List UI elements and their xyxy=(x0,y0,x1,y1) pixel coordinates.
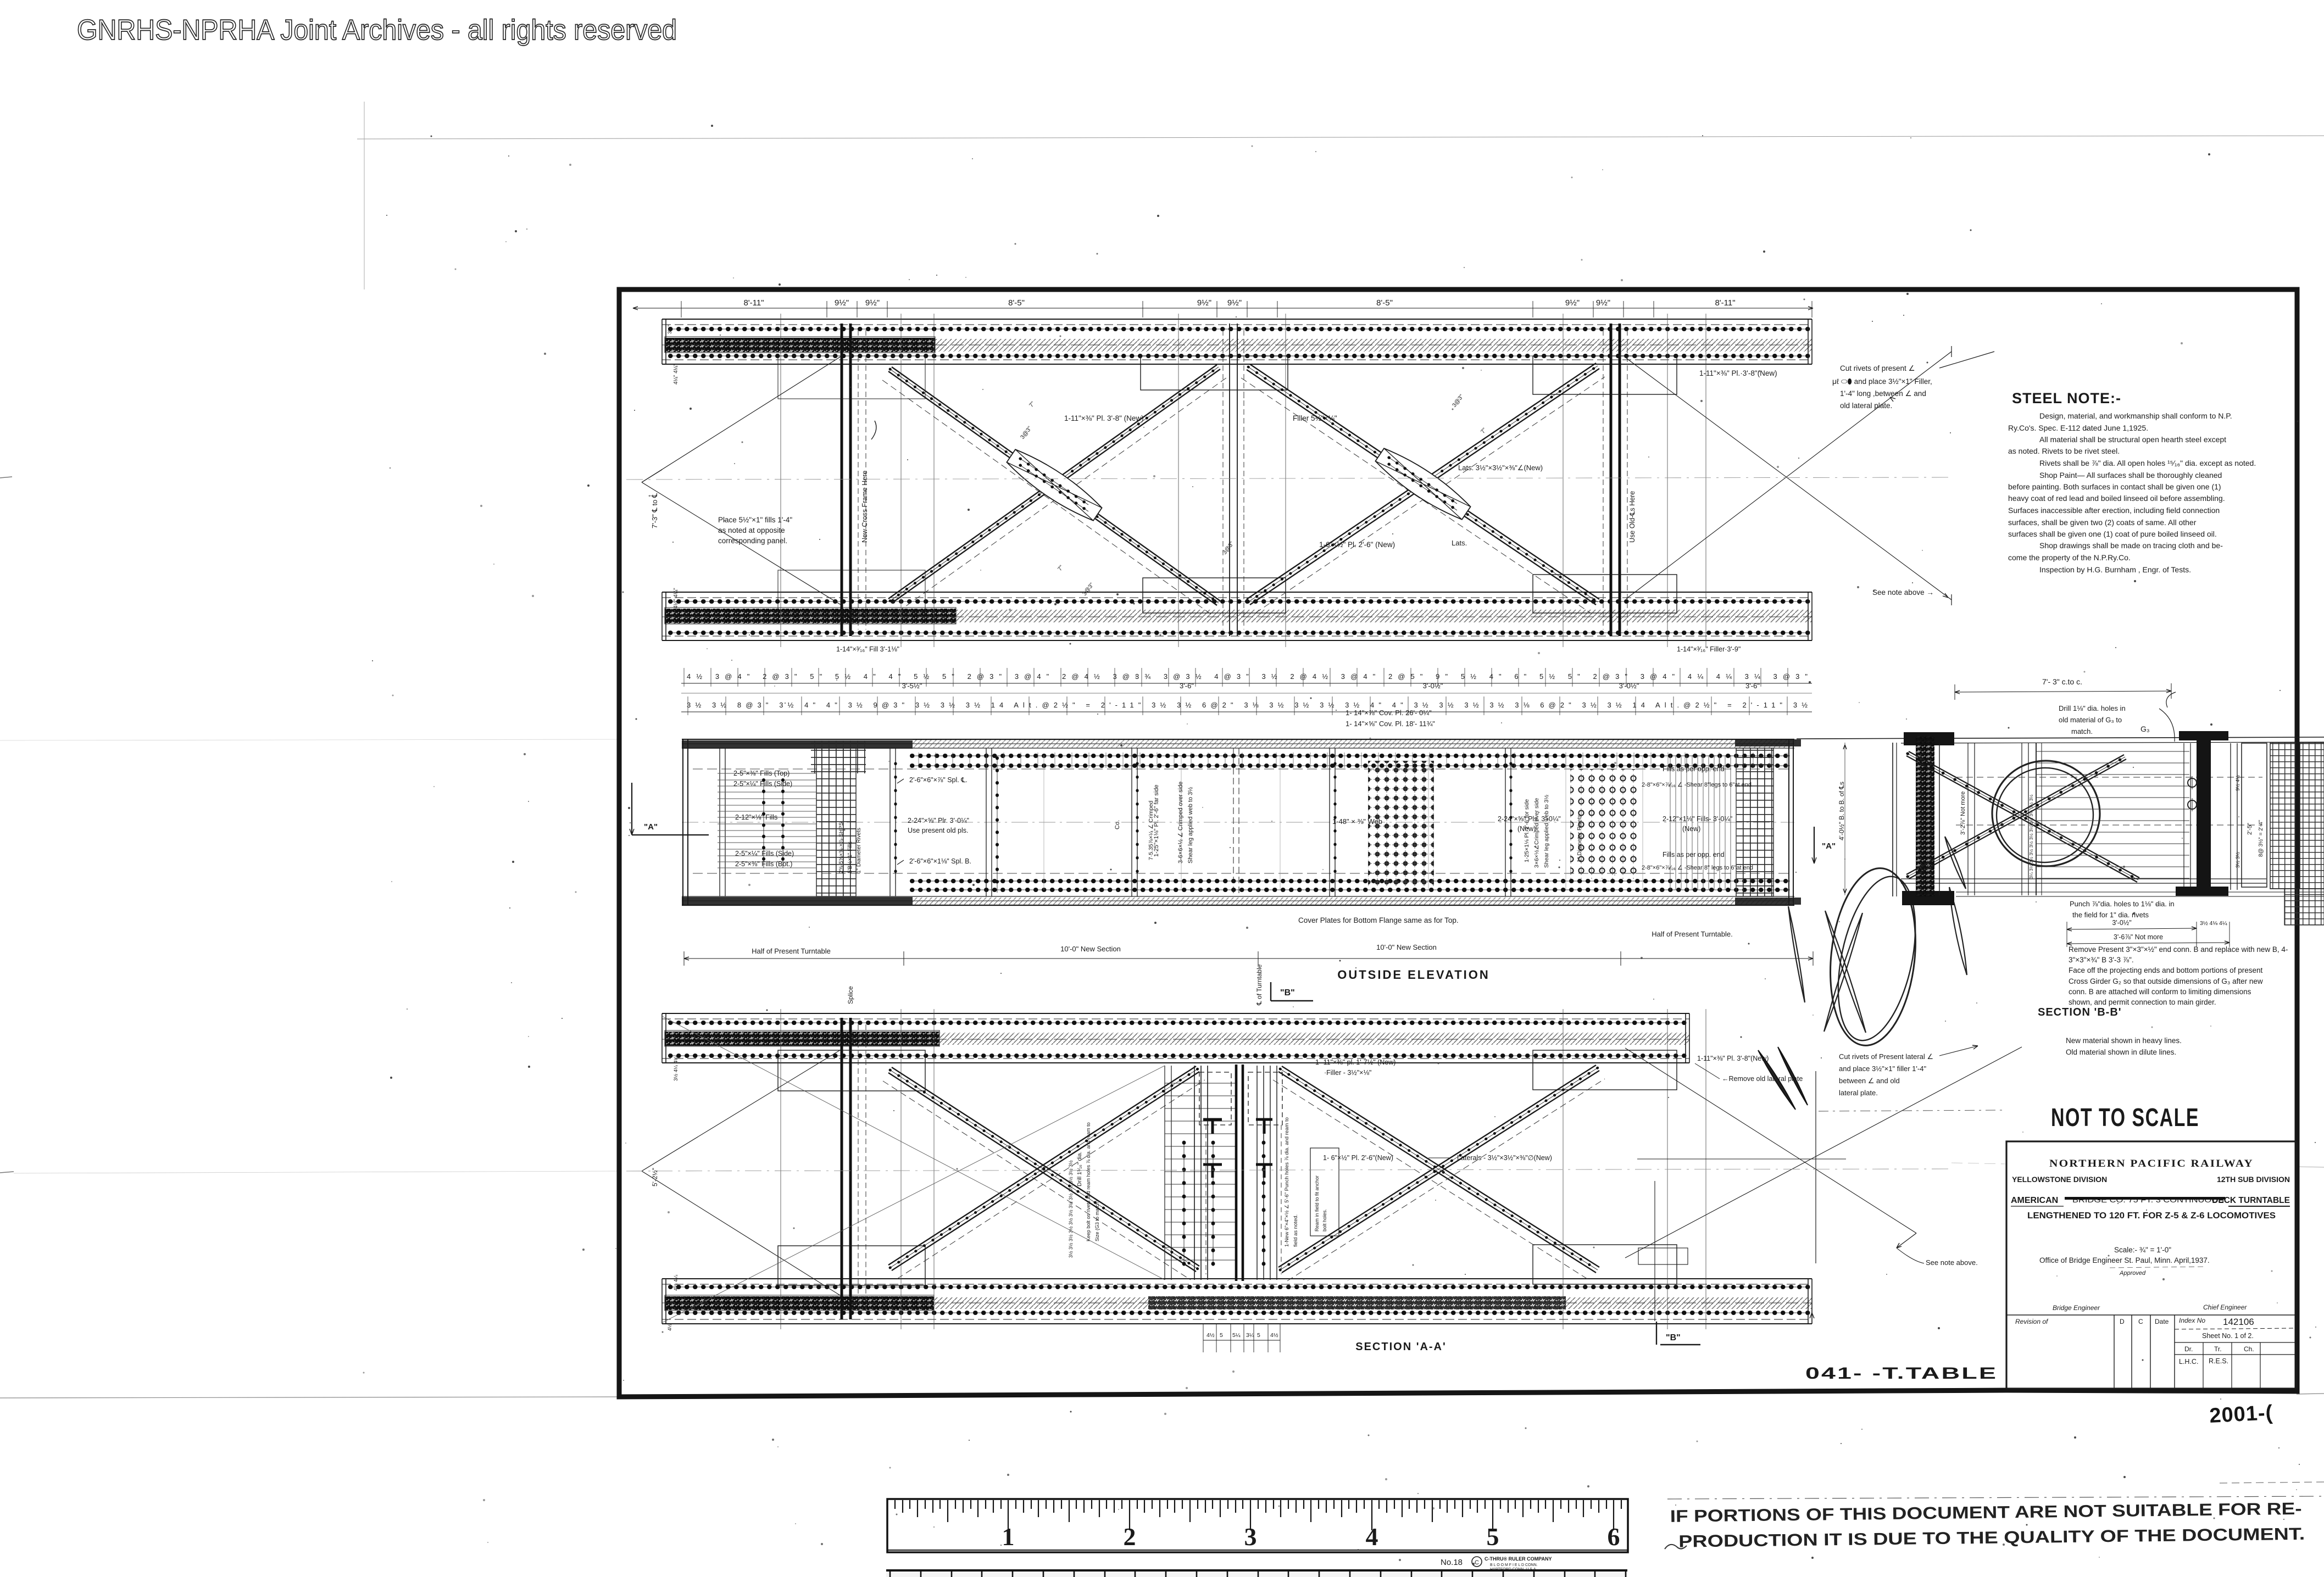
svg-text:NOT TO SCALE: NOT TO SCALE xyxy=(2051,1103,2199,1132)
svg-text:"A": "A" xyxy=(1822,842,1836,851)
svg-text:GNRHS-NPRHA Joint Archives - a: GNRHS-NPRHA Joint Archives - all rights … xyxy=(77,14,677,46)
svg-text:9½": 9½" xyxy=(1565,298,1580,308)
svg-text:4¼ 4¼: 4¼ 4¼ xyxy=(673,1274,679,1291)
svg-text:9½": 9½" xyxy=(1596,298,1610,308)
svg-text:surfaces, shall be given two (: surfaces, shall be given two (2) coats o… xyxy=(2008,518,2197,527)
svg-text:Half of Present Turntable.: Half of Present Turntable. xyxy=(1652,930,1732,938)
svg-text:2⅝·5⅝×⅜·×⅞·SHPS: 2⅝·5⅝×⅜·×⅞·SHPS xyxy=(838,822,844,873)
svg-text:Place 5½"×1" fills 1'-4": Place 5½"×1" fills 1'-4" xyxy=(718,516,792,524)
svg-text:lateral plate.: lateral plate. xyxy=(1839,1089,1878,1097)
svg-text:Design, material, and workmans: Design, material, and workmanship shall … xyxy=(2039,411,2232,420)
svg-text:match.: match. xyxy=(2071,727,2093,735)
svg-text:5'B½×1" Fills: 5'B½×1" Fills xyxy=(847,842,853,873)
svg-text:μℓ ⬭⬮ and place 3½"×1" Filler,: μℓ ⬭⬮ and place 3½"×1" Filler, xyxy=(1832,377,1932,386)
svg-text:1-14"×³⁄₁₆" Filler·3'-9": 1-14"×³⁄₁₆" Filler·3'-9" xyxy=(1677,645,1741,653)
svg-text:9½": 9½" xyxy=(1197,298,1211,308)
svg-text:1" Diameter Rivets: 1" Diameter Rivets xyxy=(1576,815,1583,862)
svg-text:Drill 1¹⁄₁₆" dia.: Drill 1¹⁄₁₆" dia. xyxy=(1076,1152,1083,1186)
svg-text:Use Old-℄s Here: Use Old-℄s Here xyxy=(1628,491,1636,543)
svg-text:Revision of: Revision of xyxy=(2015,1318,2049,1325)
svg-text:3½ 3½: 3½ 3½ xyxy=(2235,852,2241,868)
svg-text:4: 4 xyxy=(1366,1523,1378,1551)
svg-text:5: 5 xyxy=(1257,1332,1260,1339)
svg-text:5: 5 xyxy=(1220,1332,1223,1339)
svg-text:Filler 5½"×⅛": Filler 5½"×⅛" xyxy=(1293,414,1337,422)
svg-text:3¼: 3¼ xyxy=(1246,1332,1254,1339)
svg-text:2-8"×6"×⅞⁄₁₆ ∠ -Shear 8" legs: 2-8"×6"×⅞⁄₁₆ ∠ -Shear 8" legs to 6"at en… xyxy=(1642,865,1753,871)
svg-text:3½ 4¼ 4¼: 3½ 4¼ 4¼ xyxy=(673,1056,679,1081)
svg-text:4¼" 4¼": 4¼" 4¼" xyxy=(672,364,679,385)
svg-text:Chief Engineer: Chief Engineer xyxy=(2203,1303,2247,1311)
svg-text:Cross Girder G₂ so that outsid: Cross Girder G₂ so that outside dimensio… xyxy=(2069,977,2263,985)
svg-text:Approved: Approved xyxy=(2119,1270,2146,1277)
svg-text:See note above →: See note above → xyxy=(1872,588,1934,597)
svg-text:3½ 3½ 3½ 3½ 3½ 3½ 3½ 3½ 3½ 3½: 3½ 3½ 3½ 3½ 3½ 3½ 3½ 3½ 3½ 3½ 3½ 3½ xyxy=(1068,1160,1074,1258)
svg-text:between ∠ and old: between ∠ and old xyxy=(1839,1077,1900,1085)
svg-text:(New): (New) xyxy=(1682,825,1700,833)
svg-text:L.H.C.: L.H.C. xyxy=(2179,1358,2198,1366)
svg-text:C: C xyxy=(1475,1559,1479,1566)
svg-text:C: C xyxy=(2138,1318,2143,1325)
svg-text:2001-(: 2001-( xyxy=(2209,1401,2273,1428)
svg-text:field as noted.: field as noted. xyxy=(1293,1214,1299,1247)
svg-text:12TH SUB DIVISION: 12TH SUB DIVISION xyxy=(2217,1175,2290,1184)
svg-text:SECTION 'B-B': SECTION 'B-B' xyxy=(2038,1006,2122,1018)
svg-text:3'-6": 3'-6" xyxy=(1745,682,1760,690)
svg-text:YELLOWSTONE DIVISION: YELLOWSTONE DIVISION xyxy=(2012,1175,2107,1184)
svg-text:2-24"×⅝" Plr. 3'-0¼": 2-24"×⅝" Plr. 3'-0¼" xyxy=(908,817,969,824)
svg-text:the field for 1" dia. rivets: the field for 1" dia. rivets xyxy=(2072,911,2149,919)
svg-text:3½ 4⅛ 4¼: 3½ 4⅛ 4¼ xyxy=(2200,920,2227,927)
svg-text:4½: 4½ xyxy=(667,1324,673,1331)
svg-text:D: D xyxy=(2120,1318,2125,1325)
svg-text:3'-6": 3'-6" xyxy=(1180,682,1194,690)
svg-text:3-6×6×½ ∠ Crimped over side: 3-6×6×½ ∠ Crimped over side xyxy=(1177,782,1184,863)
svg-text:1'-4" long ,between ∠ and: 1'-4" long ,between ∠ and xyxy=(1840,389,1926,398)
svg-text:surfaces shall be given one (1: surfaces shall be given one (1) coat of … xyxy=(2008,530,2217,538)
svg-text:LENGTHENED TO 120 FT. FOR Z: LENGTHENED TO 120 FT. FOR Z-5 & Z-6 LOCO… xyxy=(2027,1211,2276,1221)
svg-text:3'-0½": 3'-0½" xyxy=(1423,682,1443,690)
svg-text:NORTHERN PACIFIC RAILWAY: NORTHERN PACIFIC RAILWAY xyxy=(2049,1158,2254,1169)
svg-text:Surfaces inaccessible after e: Surfaces inaccessible after erection, in… xyxy=(2008,506,2220,515)
svg-text:Size (G3 to match): Size (G3 to match) xyxy=(1094,1200,1100,1241)
svg-text:corresponding panel.: corresponding panel. xyxy=(718,537,787,545)
svg-text:1-New 6"×4"×½ ∠ 5'-6" Punch h: 1-New 6"×4"×½ ∠ 5'-6" Punch holes ⅞ dia.… xyxy=(1284,1117,1290,1247)
svg-text:and place 3½"×1" filler 1'-4: and place 3½"×1" filler 1'-4" xyxy=(1839,1065,1926,1073)
svg-text:Punch ⅞"dia. holes to 1⅛" dia.: Punch ⅞"dia. holes to 1⅛" dia. in xyxy=(2070,900,2175,908)
svg-text:"B": "B" xyxy=(1666,1333,1681,1342)
svg-text:3'-6⅞" Not more: 3'-6⅞" Not more xyxy=(2114,933,2163,941)
svg-text:old material of G₃ to: old material of G₃ to xyxy=(2059,716,2122,724)
svg-text:Index No: Index No xyxy=(2179,1317,2205,1324)
svg-text:Fills as per opp. end: Fills as per opp. end xyxy=(1663,765,1725,773)
svg-text:9½": 9½" xyxy=(1227,298,1242,308)
svg-text:3'-2⅞" Not more: 3'-2⅞" Not more xyxy=(1960,792,1966,835)
svg-text:1-6"×½" Pl. 2'-6" (New): 1-6"×½" Pl. 2'-6" (New) xyxy=(1319,540,1395,549)
svg-text:G₃: G₃ xyxy=(2140,725,2150,733)
svg-text:9½ 4½: 9½ 4½ xyxy=(2235,775,2241,791)
svg-text:1-11"×⅜" Pl.·3'-8"(New): 1-11"×⅜" Pl.·3'-8"(New) xyxy=(1699,369,1777,377)
svg-text:1-11"×⅜" Pl. 3'-8"(New): 1-11"×⅜" Pl. 3'-8"(New) xyxy=(1697,1055,1769,1062)
svg-text:SECTION 'A-A': SECTION 'A-A' xyxy=(1355,1341,1447,1353)
svg-text:℄ of Turntable: ℄ of Turntable xyxy=(1255,964,1263,1006)
svg-text:Shear leg applied web to 3½: Shear leg applied web to 3½ xyxy=(1543,795,1550,868)
svg-text:5¼: 5¼ xyxy=(1232,1332,1241,1339)
svg-text:7'- 3" c.to c.: 7'- 3" c.to c. xyxy=(2042,677,2082,686)
svg-text:old lateral plate.: old lateral plate. xyxy=(1840,402,1892,410)
svg-text:shown, and permit connection t: shown, and permit connection to main gir… xyxy=(2069,998,2216,1006)
svg-text:Ream in field to fit anchor: Ream in field to fit anchor xyxy=(1314,1175,1320,1231)
svg-text:All material shall be structur: All material shall be structural open he… xyxy=(2039,435,2226,444)
svg-text:5: 5 xyxy=(1487,1523,1499,1551)
svg-text:4¼" 4¼": 4¼" 4¼" xyxy=(672,588,679,609)
svg-text:8'-5": 8'-5" xyxy=(1376,298,1393,308)
svg-text:4½: 4½ xyxy=(1270,1332,1278,1339)
svg-text:Fills as per opp. end: Fills as per opp. end xyxy=(1663,851,1725,859)
svg-text:Remove Present 3"×3"×½" end co: Remove Present 3"×3"×½" end conn. B and … xyxy=(2069,945,2288,954)
svg-text:"B": "B" xyxy=(1280,988,1295,998)
svg-text:3'-0½": 3'-0½" xyxy=(2112,919,2131,927)
svg-text:8'-11": 8'-11" xyxy=(1715,298,1735,308)
svg-text:10'-0" New Section: 10'-0" New Section xyxy=(1376,943,1437,951)
svg-text:041- -T.TABLE: 041- -T.TABLE xyxy=(1805,1364,1998,1383)
svg-text:Bridge Engineer: Bridge Engineer xyxy=(2053,1304,2100,1312)
svg-text:Use present old pls.: Use present old pls. xyxy=(908,827,968,834)
svg-text:←Remove old lateral plate: ←Remove old lateral plate xyxy=(1722,1075,1803,1083)
svg-text:Drill 1⅛" dia. holes in: Drill 1⅛" dia. holes in xyxy=(2059,704,2126,712)
svg-text:1- 14"×⅝" Cov. Pl. 18'- 11¾": 1- 14"×⅝" Cov. Pl. 18'- 11¾" xyxy=(1346,720,1435,728)
svg-text:·Filler - 3½"×⅛": ·Filler - 3½"×⅛" xyxy=(1324,1069,1371,1077)
svg-text:Co.: Co. xyxy=(1114,820,1121,829)
svg-text:1- 14"×⅞" Cov. Pl. 26'- 0¼": 1- 14"×⅞" Cov. Pl. 26'- 0¼" xyxy=(1346,709,1432,717)
svg-text:2'-6"×6"×1⅛" Spl. B.: 2'-6"×6"×1⅛" Spl. B. xyxy=(909,857,971,865)
svg-text:3'-0½": 3'-0½" xyxy=(1619,682,1639,690)
svg-text:Old material shown in dilute l: Old material shown in dilute lines. xyxy=(2066,1048,2176,1056)
svg-text:Ch.: Ch. xyxy=(2244,1345,2254,1353)
svg-text:8'-11": 8'-11" xyxy=(743,298,764,308)
svg-text:heavy coat of red lead and boi: heavy coat of red lead and boiled linsee… xyxy=(2008,494,2225,503)
svg-text:142106: 142106 xyxy=(2223,1317,2254,1327)
svg-text:Office of Bridge Engineer: Office of Bridge Engineer St. Paul, Minn… xyxy=(2039,1256,2210,1264)
svg-text:Splice: Splice xyxy=(847,986,854,1004)
svg-text:Half of Present Turntable: Half of Present Turntable xyxy=(752,947,831,955)
svg-text:10'-0" New Section: 10'-0" New Section xyxy=(1060,945,1121,953)
svg-text:2-5"×¼" Fills (Side): 2-5"×¼" Fills (Side) xyxy=(733,780,792,788)
svg-text:New Cross Frame Here: New Cross Frame Here xyxy=(861,471,869,543)
svg-text:as noted at opposite: as noted at opposite xyxy=(718,526,785,534)
svg-text:2-8"×6"×⅞⁄₁₆ ∠ -Shear 8"legs t: 2-8"×6"×⅞⁄₁₆ ∠ -Shear 8"legs to 6"at end xyxy=(1642,782,1752,788)
svg-text:"A": "A" xyxy=(644,822,658,832)
svg-text:No.18: No.18 xyxy=(1441,1558,1463,1567)
svg-text:5'-2½": 5'-2½" xyxy=(651,1168,659,1186)
svg-text:before painting. Both surf: before painting. Both surfaces in contac… xyxy=(2008,482,2221,491)
svg-text:Cut rivets of Present lateral: Cut rivets of Present lateral ∠ xyxy=(1839,1052,1933,1061)
svg-text:1: 1 xyxy=(1002,1523,1015,1551)
svg-text:Shear leg applied web to 3½: Shear leg applied web to 3½ xyxy=(1187,787,1194,863)
svg-text:See note above.: See note above. xyxy=(1926,1258,1978,1267)
svg-text:7·5.35⅞×¼ ∠ Crimped: 7·5.35⅞×¼ ∠ Crimped xyxy=(1148,800,1154,860)
svg-text:New material shown in heavy li: New material shown in heavy lines. xyxy=(2066,1037,2182,1045)
svg-text:2-12"×⅛" Fills: 2-12"×⅛" Fills xyxy=(735,813,777,821)
svg-text:3×6×½∠Crimped over side: 3×6×½∠Crimped over side xyxy=(1533,798,1540,868)
svg-text:come the property of the N.P.R: come the property of the N.P.Ry.Co. xyxy=(2008,553,2131,562)
svg-text:8'-5": 8'-5" xyxy=(1008,298,1025,308)
svg-text:2: 2 xyxy=(1124,1523,1136,1551)
svg-text:4½: 4½ xyxy=(1207,1332,1215,1339)
svg-text:1- 6"×½" Pl. 2'-6"(New): 1- 6"×½" Pl. 2'-6"(New) xyxy=(1323,1154,1393,1162)
svg-text:Lats.: Lats. xyxy=(1452,539,1467,547)
svg-text:Rivets shall be ⅞" dia. All: Rivets shall be ⅞" dia. All open holes ¹… xyxy=(2039,459,2256,467)
svg-text:3"×3"×¾" B 3'-3 ⅞".: 3"×3"×¾" B 3'-3 ⅞". xyxy=(2069,956,2134,964)
svg-text:2-5"×⅜" Fills (Bot.): 2-5"×⅜" Fills (Bot.) xyxy=(735,860,792,868)
svg-text:conn. B are attached will conf: conn. B are attached will conform to lim… xyxy=(2069,988,2251,996)
svg-text:Cut rivets of present ∠: Cut rivets of present ∠ xyxy=(1840,364,1915,372)
svg-text:←: ← xyxy=(647,491,654,499)
svg-text:Inspection by H.G. Burnham , E: Inspection by H.G. Burnham , Engr. of Te… xyxy=(2039,565,2191,574)
svg-text:1-25×1⅛ Pl. 2'-6"for side: 1-25×1⅛ Pl. 2'-6"for side xyxy=(1524,799,1530,862)
svg-text:3½": 3½" xyxy=(667,325,673,334)
svg-text:Lats. 3½"×3½"×⅜"∠(New): Lats. 3½"×3½"×⅜"∠(New) xyxy=(1458,464,1543,472)
svg-text:3¼ 3½ 3½ 3½ 3½ 3½ 3½ 3¼ 3½ 3½: 3¼ 3½ 3½ 3½ 3½ 3½ 3½ 3¼ 3½ 3½ 3½ xyxy=(2028,794,2034,879)
svg-text:as noted. Rivets to be riv: as noted. Rivets to be rivet steel. xyxy=(2008,447,2120,455)
svg-text:Laterals - 3½"×3½"×⅜"∅(New): Laterals - 3½"×3½"×⅜"∅(New) xyxy=(1457,1154,1552,1162)
svg-text:1-11"×⅜" Pl. 3'-8" (New): 1-11"×⅜" Pl. 3'-8" (New) xyxy=(1064,414,1144,422)
svg-text:8@ 3½" = 2'-4": 8@ 3½" = 2'-4" xyxy=(2258,820,2264,857)
svg-text:1- 11"×⅜" pl. 1'-7½" (New): 1- 11"×⅜" pl. 1'-7½" (New) xyxy=(1315,1058,1395,1066)
svg-text:4'-0½" B. to B. of ℄s: 4'-0½" B. to B. of ℄s xyxy=(1838,782,1845,840)
svg-text:9½": 9½" xyxy=(865,298,880,308)
svg-text:AMERICAN: AMERICAN xyxy=(2011,1196,2058,1205)
svg-text:Face off the projecting ends a: Face off the projecting ends and bottom … xyxy=(2069,966,2262,974)
svg-text:1" Diameter Rivets: 1" Diameter Rivets xyxy=(856,828,862,873)
svg-text:2'-6"×6"×⅞" Spl. ℄.: 2'-6"×6"×⅞" Spl. ℄. xyxy=(909,776,968,784)
svg-text:6: 6 xyxy=(1608,1523,1620,1551)
svg-text:Cover Plates for Bottom Flange: Cover Plates for Bottom Flange same as f… xyxy=(1298,916,1459,924)
svg-text:2-5"×⅜" Fills (Top): 2-5"×⅜" Fills (Top) xyxy=(733,770,790,777)
svg-text:OUTSIDE ELEVATION: OUTSIDE ELEVATION xyxy=(1337,968,1490,982)
svg-text:B L O O M F I E L D CONN.: B L O O M F I E L D CONN. xyxy=(1490,1563,1538,1567)
svg-text:Ry.Co's. Spec. E-112 dated Jun: Ry.Co's. Spec. E-112 dated June 1,1925. xyxy=(2008,423,2148,432)
svg-text:STEEL NOTE:-: STEEL NOTE:- xyxy=(2012,390,2121,406)
svg-text:bolt holes.: bolt holes. xyxy=(1322,1209,1327,1231)
svg-text:3'-5½": 3'-5½" xyxy=(902,682,922,690)
svg-text:9½": 9½" xyxy=(835,298,849,308)
svg-text:2'-5": 2'-5" xyxy=(2247,823,2253,835)
svg-text:2-5"×¼" Fills (Side): 2-5"×¼" Fills (Side) xyxy=(735,850,794,857)
svg-text:1-48" × ⅜" Web: 1-48" × ⅜" Web xyxy=(1332,817,1382,826)
svg-text:Shop drawings shall be made on: Shop drawings shall be made on tracing c… xyxy=(2039,541,2223,550)
svg-text:3: 3 xyxy=(1244,1523,1257,1551)
svg-text:2-12"×1⅛" Fills- 3'-0¼": 2-12"×1⅛" Fills- 3'-0¼" xyxy=(1663,815,1732,823)
svg-text:R.E.S.: R.E.S. xyxy=(2209,1357,2228,1365)
svg-text:1-14"×³⁄₁₆" Fill 3'-1⅛": 1-14"×³⁄₁₆" Fill 3'-1⅛" xyxy=(836,645,899,653)
svg-text:Keep bolt on rivets and ream h: Keep bolt on rivets and ream holes ⅞ dia… xyxy=(1086,1122,1091,1241)
svg-text:Scale:- ¾" = 1'-0": Scale:- ¾" = 1'-0" xyxy=(2114,1246,2171,1254)
svg-text:Dr.: Dr. xyxy=(2184,1345,2193,1353)
svg-text:Shop Paint— All surfaces shall: Shop Paint— All surfaces shall be thorou… xyxy=(2039,471,2222,480)
svg-text:Tr.: Tr. xyxy=(2214,1345,2222,1353)
svg-text:C-THRU® RULER COMPANY: C-THRU® RULER COMPANY xyxy=(1485,1556,1552,1562)
svg-text:Date: Date xyxy=(2155,1318,2169,1325)
svg-text:Sheet No. 1 of 2.: Sheet No. 1 of 2. xyxy=(2202,1332,2254,1340)
